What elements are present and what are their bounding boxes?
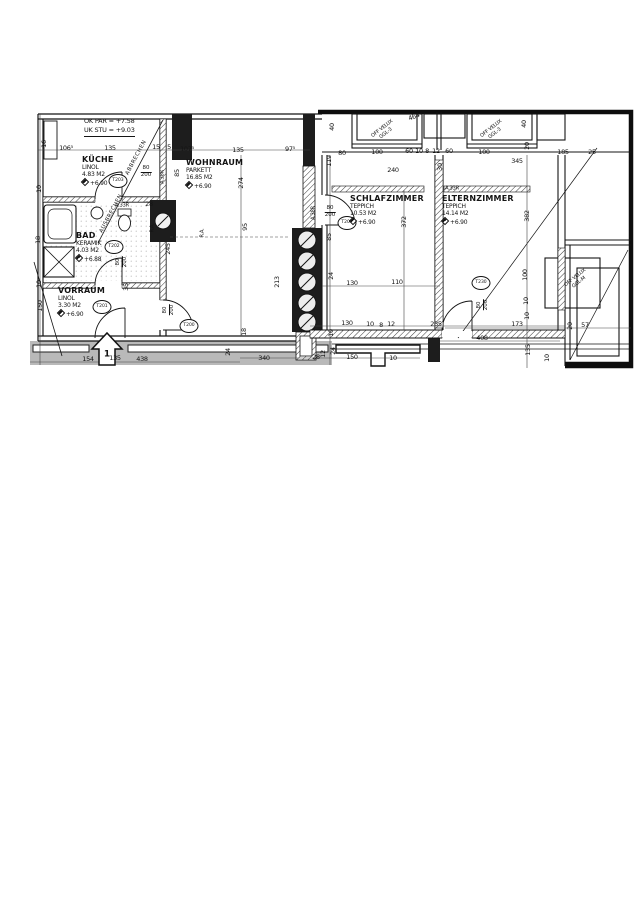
dimension-label: 10 [36,185,43,193]
dimension-label: 25 [588,149,596,156]
level-marker-icon [349,217,357,225]
room-name: WOHNRAUM [186,158,243,167]
dimension-label: 12 [432,148,440,155]
dimension-label: 20 [524,142,531,150]
dimension-label: 464 [407,112,420,122]
dimension-label: 100 [478,149,490,156]
dimension-label: 35 [123,283,130,291]
radiator-label: A.38R [161,170,166,184]
room-label: SCHLAFZIMMERTEPPICH10.53 M2+6.90 [350,194,424,227]
floorplan-canvas: OK PAR = +7.58 UK STU = +9.03 1 106⁵1351… [0,0,637,380]
labels-layer: OK PAR = +7.58 UK STU = +9.03 1 106⁵1351… [0,0,637,380]
dimension-label: 40 [521,120,528,128]
dimension-label: 10 [389,355,397,362]
dimension-label: 110 [391,279,403,286]
room-level: +6.90 [350,218,424,227]
radiator-label: R.A. [151,223,156,232]
room-name: VORRAUM [58,286,105,295]
room-name: SCHLAFZIMMER [350,194,424,203]
dimension-label: 5 [167,144,171,151]
dimension-label: 15 [152,144,160,151]
room-area: 4.83 M2 [82,172,114,179]
dimension-label: 95 [242,223,249,231]
level-marker-icon [75,254,83,262]
dimension-label: 213 [274,276,281,288]
room-area: 10.53 M2 [350,211,424,218]
dimension-label: 10 [544,354,551,362]
dimension-label: 382 [524,210,531,222]
dimension-label: 85 [174,169,181,177]
room-level: +6.88 [76,255,101,264]
dimension-label: 28 [145,201,153,208]
dimension-label: 154 [82,356,94,363]
dimension-label: 18 [241,328,248,336]
height-notes: OK PAR = +7.58 UK STU = +9.03 [84,117,135,137]
dimension-label: 16 [41,140,48,148]
room-name: KÜCHE [82,155,114,164]
room-label: VORRAUMLINOL3.30 M2+6.90 [58,286,105,319]
dimension-label: 10 [328,329,335,337]
dimension-label: 185 [557,149,569,156]
note-uk-stu: UK STU = +9.03 [84,126,135,135]
dimension-label: 100 [522,269,529,281]
room-area: 16.85 M2 [186,175,243,182]
dimension-label: 97⁵ [285,146,295,153]
dimension-label: 10 [366,321,374,328]
door-size-label: 80200 [163,305,175,316]
dimension-label: 60 [405,148,413,155]
radiator-label: R.A. [201,228,206,237]
level-marker-icon [81,178,89,186]
door-tag: T200 [180,319,199,333]
room-label: ELTERNZIMMERTEPPICH14.14 M2+6.90 [442,194,514,227]
door-tag: T230 [472,276,491,290]
dimension-label: 60 [445,148,453,155]
dimension-label: 100 [371,149,383,156]
demolition-note: AUSBRECHEN [99,194,124,234]
dimension-label: 107⁵ [180,146,194,153]
dimension-label: 24 [330,347,337,355]
dimension-label: 30 [437,163,444,171]
door-size-label: 80200 [116,257,128,268]
velux-window-label: OFF VELUXGGL-3 [370,118,398,143]
dimension-label: 8 [379,322,383,329]
dimension-label: 240 [387,167,399,174]
dimension-label: 135 [109,355,121,362]
room-area: 14.14 M2 [442,211,514,218]
dimension-label: 130 [341,320,353,327]
room-name: BAD [76,231,101,240]
room-name: ELTERNZIMMER [442,194,514,203]
dimension-label: 345 [511,158,523,165]
level-marker-icon [441,217,449,225]
dimension-label: 408 [476,335,488,342]
dimension-label: 106⁵ [59,145,73,152]
dimension-label: 150 [37,300,44,312]
door-size-label: 80200 [325,206,336,218]
scanned-floorplan-page: { "plan": { "notes": { "line1": "OK PAR … [0,0,637,900]
room-level: +6.90 [442,218,514,227]
dimension-label: 130 [346,280,358,287]
velux-window-label: OFF VELUXGGL-M [563,267,591,292]
dimension-label: 150 [346,354,358,361]
room-level: +6.90 [58,310,105,319]
room-label: BADKERAMIK4.03 M2+6.88 [76,231,101,264]
velux-window-label: OFF VELUXGGL-3 [479,118,507,143]
dimension-label: 245 [165,243,172,255]
room-label: KÜCHELINOL4.83 M2+6.90 [82,155,114,188]
room-area: 3.30 M2 [58,303,105,310]
door-size-label: 80200 [141,166,152,178]
dimension-label: 10 [36,280,43,288]
dimension-label: 12 [387,321,395,328]
radiator-label: A.38R [312,206,317,220]
dimension-label: 57 [581,322,589,329]
room-label: WOHNRAUMPARKETT16.85 M2+6.90 [186,158,243,191]
level-marker-icon [57,309,65,317]
dimension-label: 119 [326,155,333,167]
dimension-label: 173 [511,321,523,328]
dimension-label: 135 [525,344,532,356]
door-size-label: 80200 [477,300,489,311]
dimension-label: 24 [328,272,335,280]
note-ok-par: OK PAR = +7.58 [84,117,135,126]
dimension-label: 40 [329,123,336,131]
dimension-label: 135 [232,147,244,154]
dimension-label: 135 [104,145,116,152]
radiator-label: A.33R [445,187,459,192]
dimension-label: 340 [258,355,270,362]
level-marker-icon [185,181,193,189]
dimension-label: 10 [524,312,531,320]
dimension-label: 80 [338,150,346,157]
room-level: +6.90 [82,179,114,188]
dimension-label: 24 [225,348,232,356]
dimension-label: 10 [523,297,530,305]
dimension-label: 12 [320,350,327,358]
dimension-label: 8 [425,148,429,155]
room-level: +6.90 [186,182,243,191]
dimension-label: 85 [326,233,333,241]
door-tag: T202 [105,240,124,254]
dimension-label: 438 [136,356,148,363]
dimension-label: 18 [35,236,42,244]
dimension-label: 28 [312,354,320,361]
dimension-label: 235 [430,321,442,328]
dimension-label: 10 [415,148,423,155]
dimension-label: 20 [567,322,574,330]
